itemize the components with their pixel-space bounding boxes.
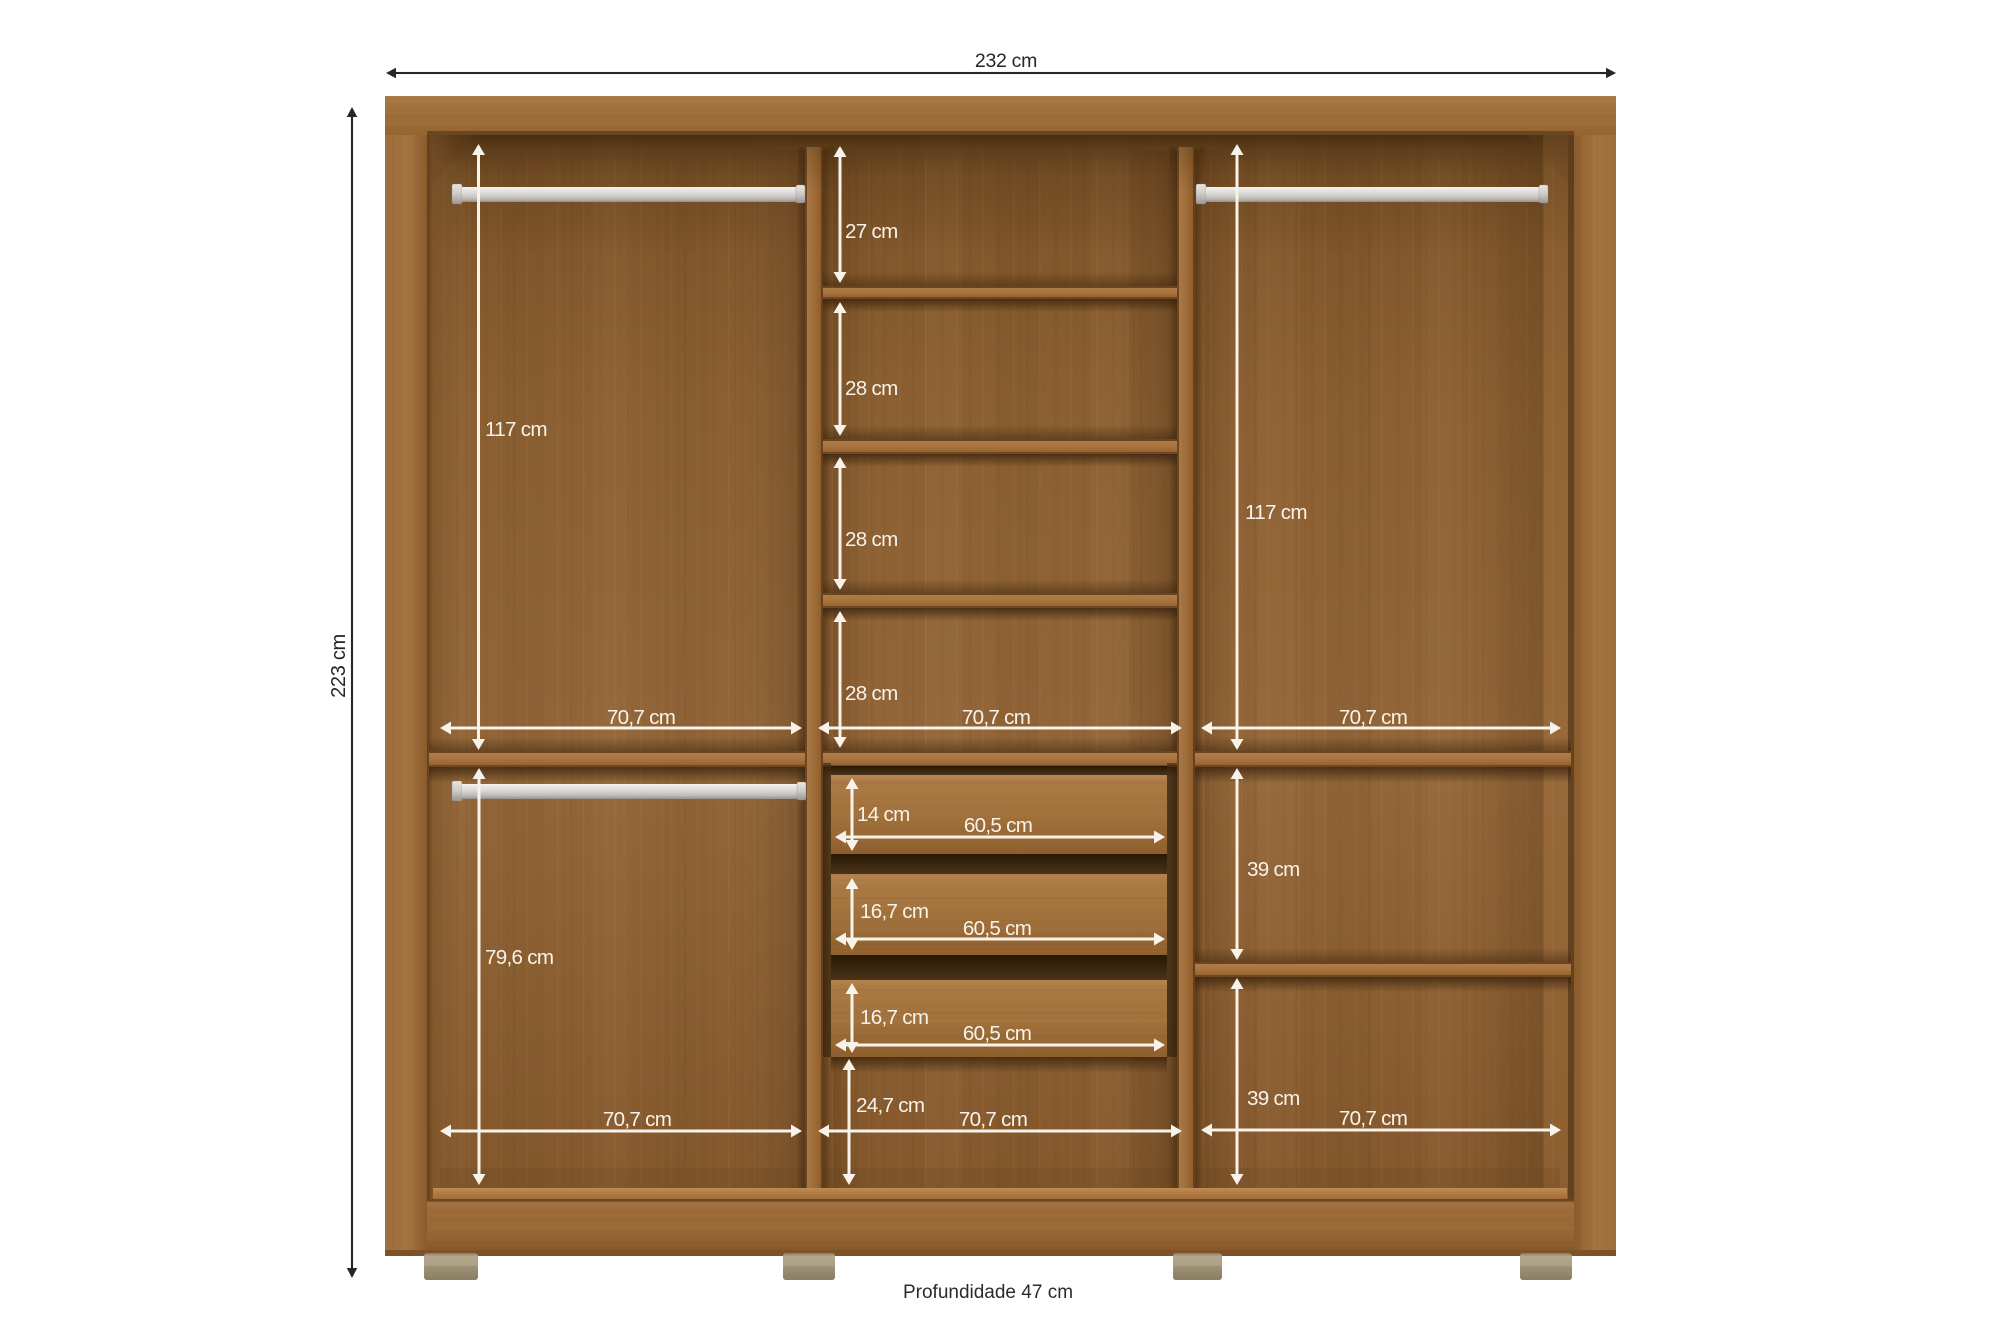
svg-text:70,7 cm: 70,7 cm <box>959 1108 1027 1131</box>
svg-text:39 cm: 39 cm <box>1247 1087 1300 1110</box>
svg-text:14 cm: 14 cm <box>857 803 910 826</box>
svg-text:28 cm: 28 cm <box>845 528 898 551</box>
svg-text:232 cm: 232 cm <box>975 50 1037 72</box>
svg-text:28 cm: 28 cm <box>845 682 898 705</box>
svg-text:223 cm: 223 cm <box>328 634 350 698</box>
svg-text:70,7 cm: 70,7 cm <box>607 706 675 729</box>
svg-text:79,6 cm: 79,6 cm <box>485 946 553 969</box>
svg-text:Profundidade 47 cm: Profundidade 47 cm <box>903 1282 1073 1303</box>
svg-text:16,7 cm: 16,7 cm <box>860 900 928 923</box>
svg-text:60,5 cm: 60,5 cm <box>964 814 1032 837</box>
svg-text:16,7 cm: 16,7 cm <box>860 1006 928 1029</box>
svg-text:27 cm: 27 cm <box>845 220 898 243</box>
svg-text:70,7 cm: 70,7 cm <box>962 706 1030 729</box>
svg-text:39 cm: 39 cm <box>1247 858 1300 881</box>
svg-text:117 cm: 117 cm <box>1245 501 1307 524</box>
svg-text:70,7 cm: 70,7 cm <box>603 1108 671 1131</box>
svg-text:60,5 cm: 60,5 cm <box>963 917 1031 940</box>
svg-text:24,7 cm: 24,7 cm <box>856 1094 924 1117</box>
svg-text:117 cm: 117 cm <box>485 418 547 441</box>
svg-text:60,5 cm: 60,5 cm <box>963 1022 1031 1045</box>
svg-text:28 cm: 28 cm <box>845 377 898 400</box>
svg-text:70,7 cm: 70,7 cm <box>1339 1107 1407 1130</box>
svg-text:70,7 cm: 70,7 cm <box>1339 706 1407 729</box>
